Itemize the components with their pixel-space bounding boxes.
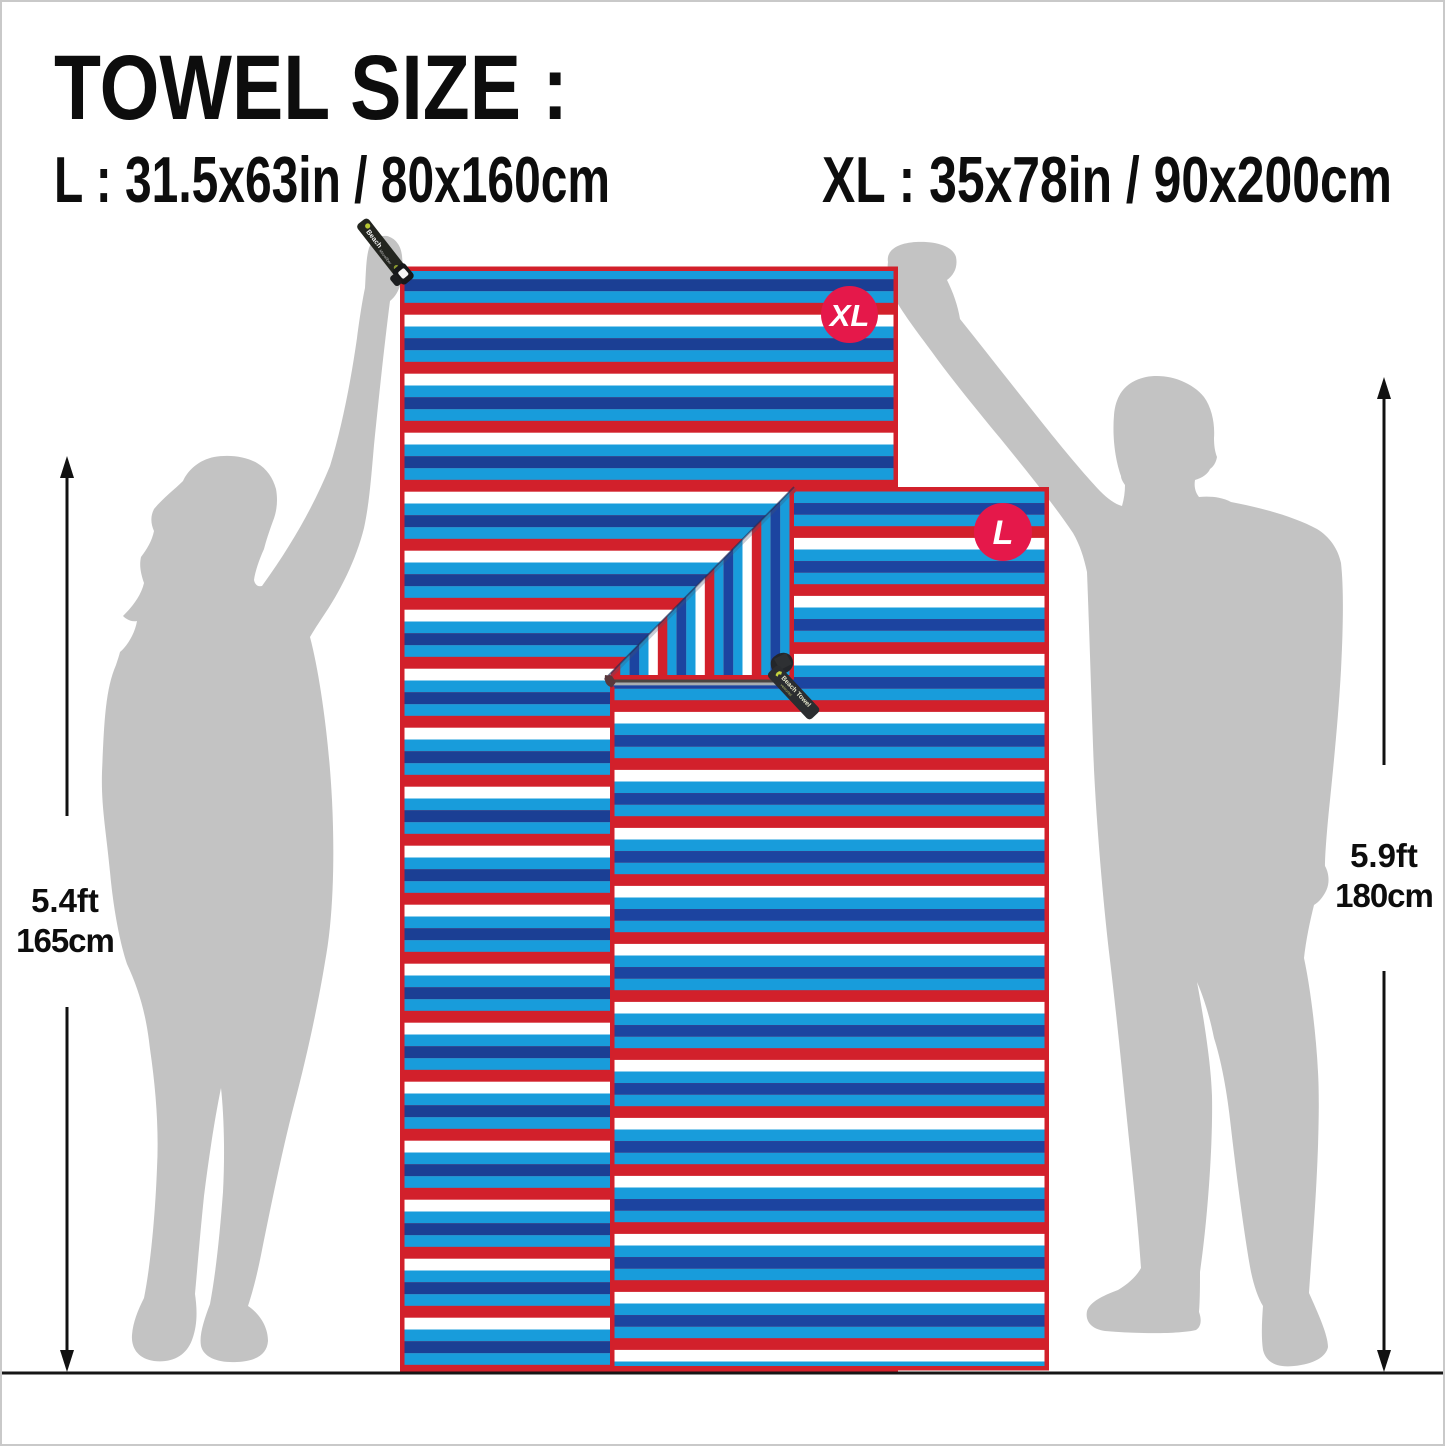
svg-text:165cm: 165cm <box>16 922 114 959</box>
svg-text:180cm: 180cm <box>1335 877 1433 914</box>
svg-text:5.4ft: 5.4ft <box>31 882 99 919</box>
svg-text:5.9ft: 5.9ft <box>1350 837 1418 874</box>
svg-text:L: L <box>993 514 1014 552</box>
svg-text:L : 31.5x63in / 80x160cm: L : 31.5x63in / 80x160cm <box>54 143 610 216</box>
svg-text:TOWEL SIZE :: TOWEL SIZE : <box>54 37 568 139</box>
svg-text:XL : 35x78in / 90x200cm: XL : 35x78in / 90x200cm <box>822 143 1392 216</box>
svg-text:XL: XL <box>828 298 870 333</box>
